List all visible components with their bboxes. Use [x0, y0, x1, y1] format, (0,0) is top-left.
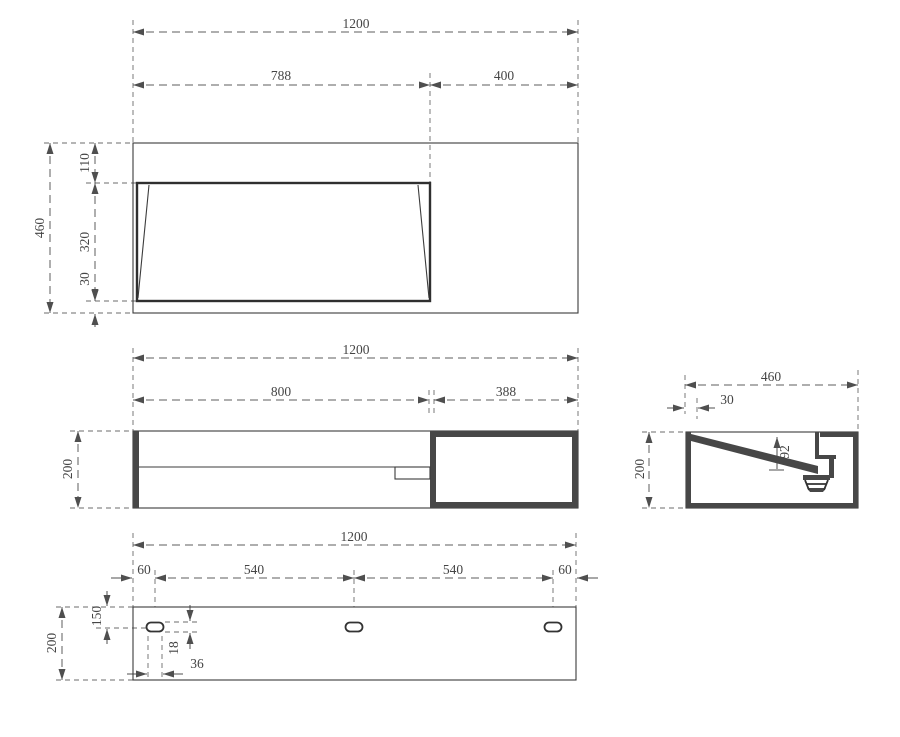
plan-view: 1200 788 400 460 110 320 30: [32, 16, 578, 327]
dim-label: 60: [558, 562, 572, 577]
side-bottom-section: [686, 503, 858, 508]
front-view: 1200 800 388 200: [60, 342, 578, 508]
drain-step: [395, 467, 430, 479]
side-back-wall-section: [853, 432, 858, 508]
dim-label: 540: [443, 562, 464, 577]
bottom-view: 1200 60 540 540 60 200 150 18 36: [44, 529, 598, 680]
mounting-slot: [346, 623, 363, 632]
dim-label: 200: [44, 633, 59, 654]
drain-side-line: [805, 480, 809, 490]
drain-side-line: [824, 480, 828, 490]
dim-label: 36: [190, 656, 204, 671]
side-view: 460 30 200 92: [632, 369, 858, 508]
basin-rim-outline: [137, 183, 430, 301]
plan-outline: [133, 143, 578, 313]
front-left-wall-section: [133, 431, 139, 508]
mounting-slot: [545, 623, 562, 632]
side-front-wall-section: [686, 432, 691, 508]
dim-label: 1200: [343, 16, 370, 31]
mounting-slot: [147, 623, 164, 632]
side-notch-drop: [829, 455, 834, 478]
dim-label: 1200: [343, 342, 370, 357]
drain-flange: [803, 475, 830, 480]
dim-label: 30: [77, 272, 92, 286]
front-outline: [133, 431, 578, 508]
dim-label: 320: [77, 232, 92, 253]
basin-slope-edges: [138, 185, 429, 298]
dim-label: 150: [89, 606, 104, 627]
dim-label: 92: [777, 445, 792, 459]
dim-label: 460: [761, 369, 782, 384]
dim-label: 18: [166, 641, 181, 655]
side-top-back-section: [820, 432, 858, 437]
dim-label: 110: [77, 153, 92, 173]
dim-label: 388: [496, 384, 517, 399]
dim-label: 800: [271, 384, 292, 399]
dim-label: 540: [244, 562, 265, 577]
drain-base: [807, 488, 826, 492]
front-shelf-section: [433, 434, 575, 505]
technical-drawing-page: 1200 788 400 460 110 320 30 1200 800 388…: [0, 0, 900, 737]
dim-label: 30: [720, 392, 734, 407]
dim-label: 1200: [341, 529, 368, 544]
dim-label: 788: [271, 68, 292, 83]
dim-label: 200: [60, 459, 75, 480]
dim-label: 400: [494, 68, 515, 83]
sink-technical-drawing: 1200 788 400 460 110 320 30 1200 800 388…: [0, 0, 900, 737]
dim-label: 200: [632, 459, 647, 480]
basin-slope-section: [691, 434, 818, 474]
dim-label: 460: [32, 218, 47, 239]
dim-label: 60: [137, 562, 151, 577]
side-notch-wall: [815, 432, 819, 455]
